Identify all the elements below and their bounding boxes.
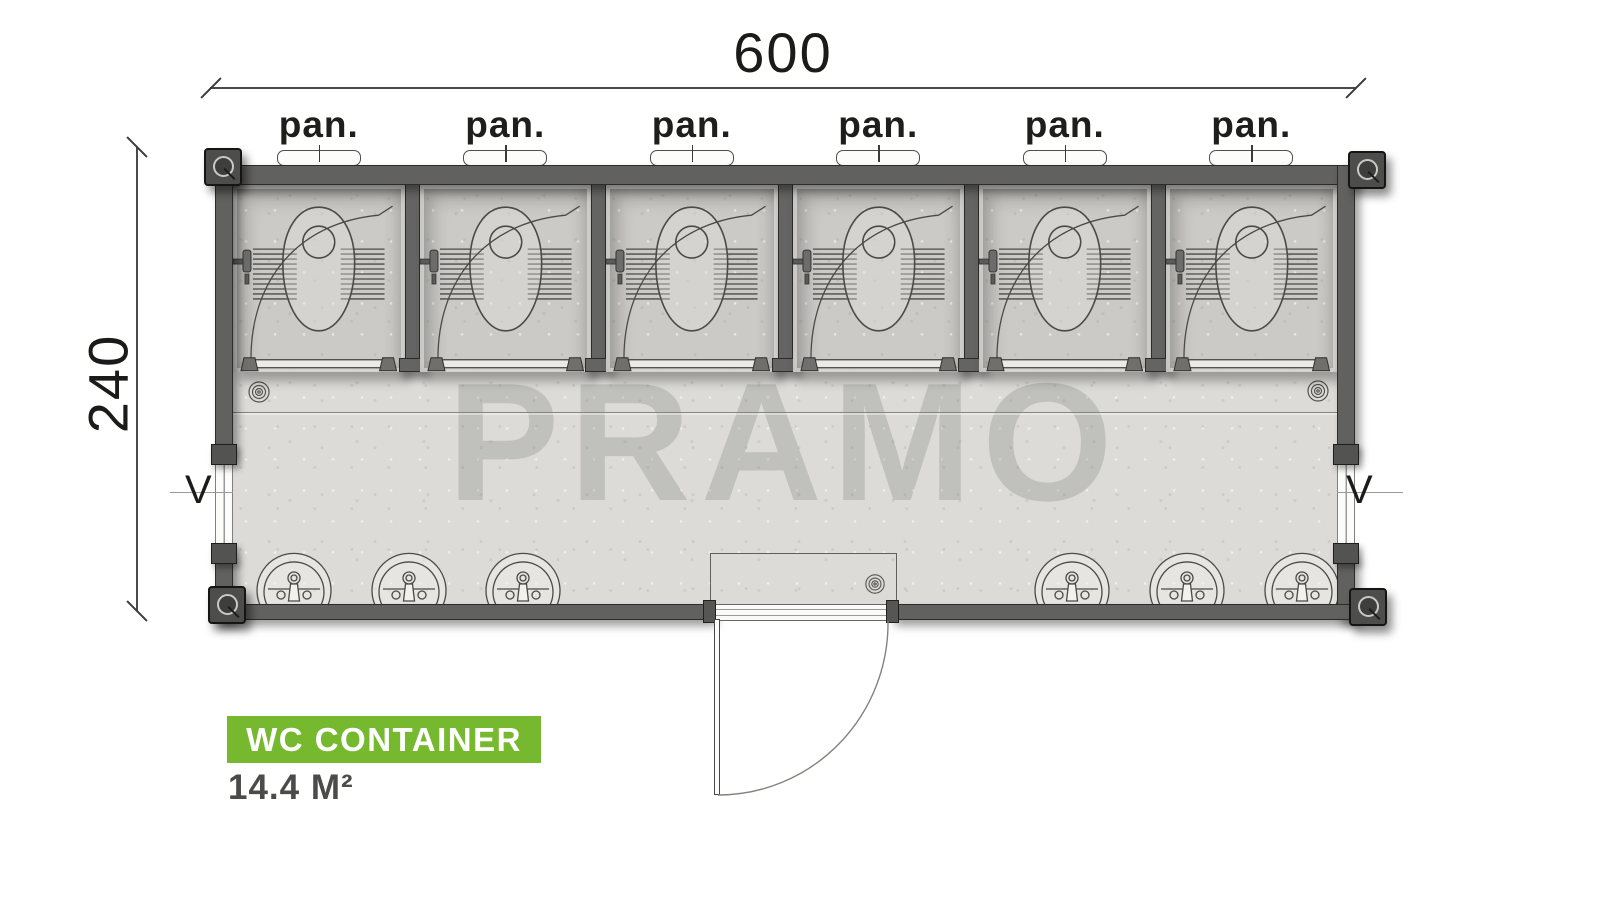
stall-door-threshold — [427, 358, 583, 371]
window-jamb — [1333, 543, 1359, 564]
stall-label-leader — [505, 145, 507, 162]
stall-door-threshold — [987, 358, 1143, 371]
window-jamb — [1333, 444, 1359, 465]
stall-valve-icon — [606, 250, 624, 284]
sink-icon — [1147, 542, 1227, 606]
floor-drain-icon — [1306, 379, 1330, 403]
toilet-stall — [793, 185, 965, 372]
dimension-width-label: 600 — [683, 20, 883, 85]
squat-toilet-icon — [420, 185, 592, 372]
dimension-height-label: 240 — [76, 284, 141, 484]
stall-label: pan. — [1005, 104, 1125, 146]
sink-icon — [1262, 542, 1342, 606]
stall-valve-icon — [793, 250, 811, 284]
dimension-line-width — [210, 87, 1356, 89]
stall-label-leader — [1065, 145, 1067, 162]
wall-bottom-right — [890, 604, 1355, 620]
sink-icon — [1032, 542, 1112, 606]
stall-partition-wall — [1151, 184, 1166, 361]
sink-icon — [254, 542, 334, 606]
stall-label-leader — [319, 145, 321, 162]
toilet-stall — [979, 185, 1151, 372]
door-swing-arc — [714, 617, 894, 801]
toilet-stall — [606, 185, 778, 372]
floor-drain-icon — [864, 573, 886, 595]
floor-drain-icon — [247, 380, 271, 404]
stall-label: pan. — [818, 104, 938, 146]
stall-label: pan. — [632, 104, 752, 146]
stall-label-leader — [878, 145, 880, 162]
corner-casting-icon — [1348, 151, 1386, 189]
wall-left-upper — [215, 165, 233, 455]
wall-bottom-left — [215, 604, 712, 620]
stall-partition-wall — [405, 184, 420, 361]
sink-icon — [369, 542, 449, 606]
stall-label-leader — [1251, 145, 1253, 162]
window-jamb — [211, 444, 237, 465]
floor-plan-canvas: 600 240 PRAMO — [0, 0, 1600, 900]
squat-toilet-icon — [606, 185, 778, 372]
corner-casting-icon — [208, 586, 246, 624]
stall-partition-wall — [964, 184, 979, 361]
stall-door-threshold — [241, 358, 397, 371]
stall-valve-icon — [979, 250, 997, 284]
toilet-stall — [420, 185, 592, 372]
corner-casting-icon — [1349, 588, 1387, 626]
corner-casting-icon — [204, 148, 242, 186]
stall-partition-wall — [591, 184, 606, 361]
badge: WC CONTAINER — [227, 716, 541, 763]
area-label: 14.4 M² — [228, 768, 354, 808]
window-jamb — [211, 543, 237, 564]
toilet-stall — [233, 185, 405, 372]
squat-toilet-icon — [793, 185, 965, 372]
stall-door-threshold — [614, 358, 770, 371]
toilet-stall — [1166, 185, 1338, 372]
stall-label: pan. — [445, 104, 565, 146]
wall-top — [215, 165, 1355, 185]
sink-icon — [483, 542, 563, 606]
stall-partition-wall — [778, 184, 793, 361]
window-label-left: V — [185, 468, 212, 513]
stall-valve-icon — [1166, 250, 1184, 284]
squat-toilet-icon — [233, 185, 405, 372]
window-label-right: V — [1346, 468, 1373, 513]
stall-label: pan. — [1191, 104, 1311, 146]
brand-watermark: PRAMO — [233, 346, 1337, 539]
stall-label-leader — [692, 145, 694, 162]
stall-door-threshold — [800, 358, 956, 371]
stall-valve-icon — [233, 250, 251, 284]
wall-right-upper — [1337, 165, 1355, 455]
badge-title: WC CONTAINER — [246, 721, 522, 759]
squat-toilet-icon — [1166, 185, 1338, 372]
corridor-floor-joint-line — [233, 412, 1337, 413]
window-left — [215, 464, 233, 544]
stall-label: pan. — [259, 104, 379, 146]
squat-toilet-icon — [979, 185, 1151, 372]
stall-valve-icon — [420, 250, 438, 284]
stall-door-threshold — [1173, 358, 1329, 371]
